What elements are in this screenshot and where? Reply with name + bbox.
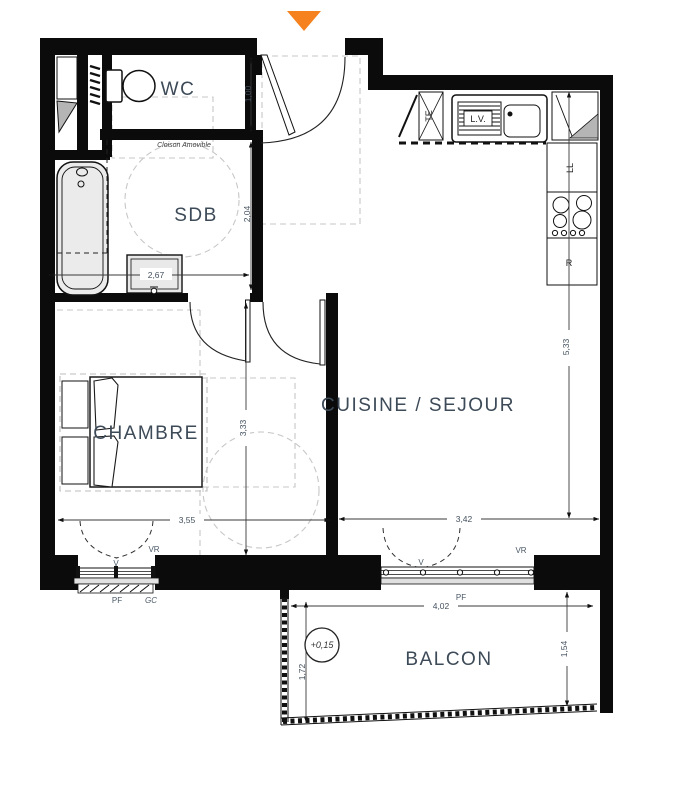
vr-chambre-label: VR	[148, 545, 159, 554]
wall-top-left	[40, 38, 257, 55]
dim-balcon-width: 4,02	[433, 601, 450, 611]
wall-right	[600, 88, 613, 713]
floor-plan-page: L.V. LL R TE	[0, 0, 697, 800]
te-label: TE	[424, 110, 434, 122]
nightstand-bottom	[62, 437, 88, 484]
v-chambre-label: V	[113, 559, 119, 568]
room-label-wc: WC	[161, 79, 196, 100]
sdb-door-swing	[190, 302, 246, 361]
chambre-door-leaf	[320, 300, 325, 365]
vr-sejour-label: VR	[515, 546, 526, 555]
dim-balcon-left: 1,72	[297, 663, 307, 680]
entrance-arrow-icon	[287, 11, 321, 31]
entrance-door-leaf	[261, 55, 295, 135]
level-marker: +0,15	[305, 628, 339, 662]
wall-kitchen-top	[383, 75, 613, 90]
dim-sdb-depth: 2,04	[242, 205, 252, 222]
level-label: +0,15	[311, 640, 335, 650]
wall-cloison	[100, 129, 255, 140]
floor-plan-drawing: L.V. LL R TE	[0, 0, 697, 800]
wall-duct-a	[77, 55, 88, 155]
te-door-leaf	[399, 95, 417, 137]
pf-chambre-label: PF	[112, 596, 122, 605]
chambre-door-swing	[263, 302, 320, 364]
wall-bottom-1	[40, 555, 78, 590]
room-label-cuisine-sejour: CUISINE / SEJOUR	[321, 395, 515, 416]
entrance-door-swing	[261, 57, 345, 143]
casement-arc	[80, 521, 117, 558]
dim-chambre-depth: 3,33	[238, 419, 248, 436]
window-sill	[74, 578, 159, 584]
sejour-window: VR V PF	[381, 528, 534, 602]
v-sejour-label: V	[418, 558, 424, 567]
dishwasher-label: L.V.	[470, 114, 485, 124]
wall-door-mullion	[250, 293, 263, 302]
cistern-hatch	[90, 66, 100, 104]
wall-chambre-top	[40, 293, 188, 302]
room-label-balcon: BALCON	[405, 649, 492, 670]
duct-box	[57, 57, 77, 99]
washing-machine-label: LL	[565, 163, 575, 173]
cloison-amovible-note: Cloison Amovible	[157, 142, 211, 149]
wall-bottom-3	[534, 555, 613, 590]
casement-arc	[421, 528, 460, 568]
toilet-tank	[106, 70, 122, 102]
cooktop	[547, 192, 597, 238]
corner-cabinet	[552, 92, 598, 140]
casement-arc	[383, 528, 422, 568]
wall-sdb-right	[252, 130, 263, 302]
kitchen-fixtures: L.V. LL R TE	[399, 92, 598, 285]
dim-sejour-width: 3,42	[456, 514, 473, 524]
dim-chambre-width: 3,55	[179, 515, 196, 525]
wall-left	[40, 38, 55, 590]
wall-bottom-2	[155, 555, 381, 590]
chambre-window: VR V PF GC	[74, 521, 160, 605]
wall-top-entry-right	[345, 38, 383, 55]
casement-arc	[116, 521, 153, 558]
window-sill	[381, 578, 534, 584]
wall-duct-bottom	[40, 150, 110, 160]
dim-balcon-right: 1,54	[559, 640, 569, 657]
dim-sejour-depth: 5,33	[561, 338, 571, 355]
toilet-bowl	[123, 71, 155, 102]
dim-sdb-width: 2,67	[148, 270, 165, 280]
washbasin-faucet	[151, 288, 157, 294]
room-label-chambre: CHAMBRE	[93, 423, 199, 444]
duct-triangle	[57, 101, 77, 132]
dim-wc-depth: 1,00	[243, 85, 253, 102]
wall-chambre-sejour	[326, 293, 338, 558]
nightstand-top	[62, 381, 88, 428]
room-label-sdb: SDB	[174, 205, 218, 226]
sink-faucet	[508, 112, 513, 117]
wall-jog	[368, 55, 383, 90]
gc-chambre-label: GC	[145, 596, 157, 605]
